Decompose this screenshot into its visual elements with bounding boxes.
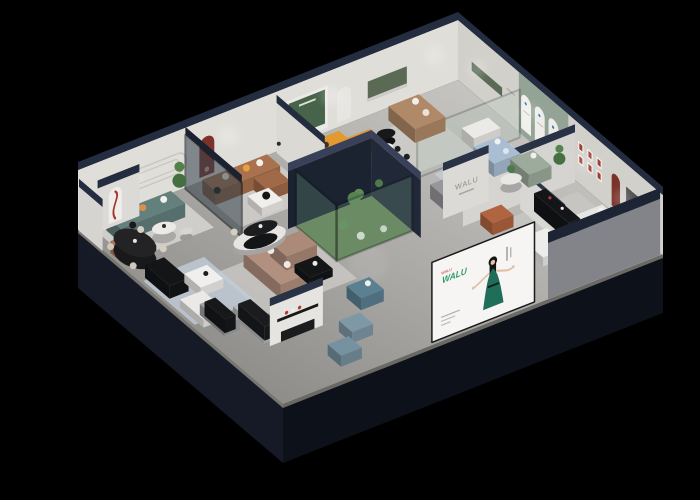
isometric-scene-svg: WALUWALUWALU	[0, 0, 700, 500]
corner-plant	[553, 153, 565, 165]
sofa-pillow-orange	[243, 165, 250, 172]
ceiling-spot	[577, 153, 595, 171]
cream-stool	[160, 245, 167, 252]
ceiling-spot	[219, 126, 239, 146]
ceiling-spot	[424, 45, 444, 65]
table-decor	[162, 224, 166, 228]
shelf-decor-white	[561, 207, 564, 210]
cream-stool	[130, 262, 137, 269]
sofa-pillow	[284, 261, 291, 268]
ceiling-spot	[520, 104, 538, 122]
tall-plant-top	[174, 162, 184, 172]
billboard-vertical-text	[506, 246, 507, 261]
table-tray-black	[203, 271, 208, 276]
sofa-pillow-orange	[139, 204, 146, 211]
sofa-pillow	[503, 148, 509, 154]
cream-stool	[107, 243, 114, 250]
sofa-pillow	[160, 196, 167, 203]
showroom-render: WALUWALUWALU	[0, 0, 700, 500]
tall-plant-base	[172, 174, 186, 188]
side-table-black	[129, 222, 136, 229]
sofa-pillow	[531, 153, 537, 159]
table-decor	[259, 224, 263, 228]
cream-chair	[231, 229, 238, 236]
armchair-pillow	[365, 280, 371, 286]
sofa-pillow	[495, 139, 501, 145]
potted-plant	[507, 165, 515, 173]
cream-stool	[137, 226, 144, 233]
table-top-black	[262, 192, 270, 200]
sofa-pillow	[422, 109, 429, 116]
table-decor	[133, 239, 137, 243]
table-tray-white	[313, 261, 318, 266]
corner-plant-top	[555, 145, 563, 153]
ceiling-spot	[321, 86, 341, 106]
sofa-pillow	[412, 98, 419, 105]
ceiling-spot	[468, 60, 486, 78]
sofa-pillow	[256, 159, 263, 166]
floor-lamp	[277, 142, 281, 146]
billboard-vertical-text	[510, 247, 511, 258]
shelf-decor-red	[548, 196, 551, 199]
